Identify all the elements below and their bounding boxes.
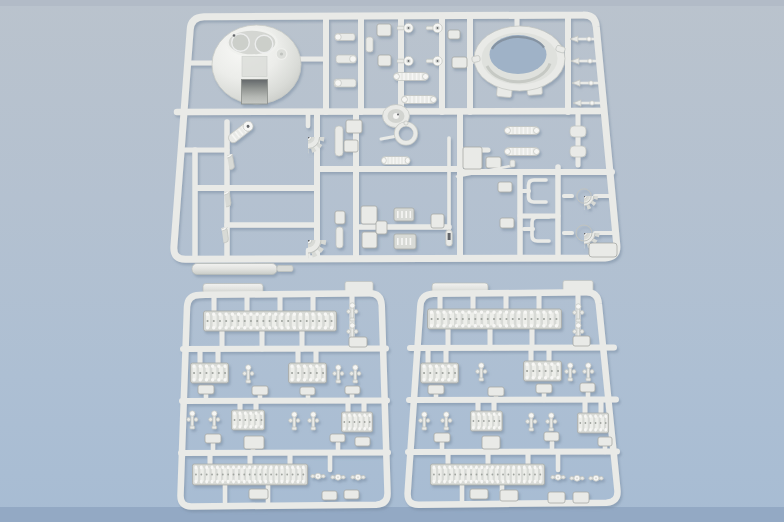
mount-pad: [573, 336, 590, 346]
mount-pad: [434, 433, 450, 442]
dome-plate: [242, 57, 267, 77]
mount-pad: [431, 214, 444, 228]
photo-canvas: [0, 0, 784, 522]
adjuster-block: [394, 234, 416, 249]
mount-pad: [252, 386, 268, 395]
muffler-rod: [505, 148, 540, 156]
mount-pad: [378, 55, 391, 66]
track-strip-long: [192, 464, 307, 485]
mount-pad: [244, 436, 264, 449]
mount-pad: [330, 434, 345, 442]
mount-pad: [488, 387, 504, 396]
cross-pin: [311, 473, 325, 479]
mount-pad: [376, 221, 387, 234]
mount-pad: [349, 337, 367, 347]
track-block: [191, 363, 229, 383]
track-strip-long: [430, 464, 544, 485]
clamp-part: [335, 34, 355, 41]
small-bar-part: [336, 227, 343, 248]
mount-pad: [452, 57, 467, 68]
muffler-rod: [505, 127, 540, 135]
track-strip-long: [204, 311, 337, 331]
mount-pad: [198, 385, 214, 394]
mount-pad: [500, 490, 518, 501]
ribbed-coupling-rod: [402, 96, 437, 104]
sprue-photo: [0, 0, 784, 522]
dome-notch: [242, 80, 268, 105]
mount-pad: [536, 384, 552, 393]
track-block: [289, 363, 327, 383]
mount-pad: [498, 182, 512, 192]
mount-pad: [500, 218, 514, 228]
backdrop-top-band: [0, 0, 784, 6]
track-block: [421, 363, 459, 383]
mount-pad: [346, 120, 362, 133]
corner-pad: [589, 243, 617, 257]
ribbed-coupling-rod: [394, 73, 429, 81]
track-block: [470, 411, 502, 431]
clamp-part: [334, 79, 356, 87]
capsule-part: [570, 146, 586, 157]
cross-pin: [351, 474, 365, 480]
mount-pad: [344, 490, 359, 499]
mount-pad: [361, 206, 377, 224]
runner: [182, 401, 387, 402]
mount-pad: [573, 492, 589, 503]
runner: [183, 349, 386, 350]
small-bar-part: [366, 37, 373, 52]
mount-pad: [322, 491, 337, 500]
mount-pad: [448, 30, 460, 39]
cross-pin: [589, 475, 603, 481]
mount-pad: [205, 434, 221, 443]
cross-pin: [551, 474, 565, 480]
mount-pad: [580, 383, 595, 392]
mount-pad: [548, 492, 565, 503]
capsule-part: [570, 126, 586, 137]
mount-pad: [598, 437, 612, 446]
track-strip-long: [428, 309, 562, 329]
mount-pad: [335, 211, 345, 224]
mount-pad: [544, 432, 559, 441]
mount-pad: [345, 386, 360, 394]
ring-tab: [471, 55, 480, 63]
mount-pad: [362, 232, 377, 248]
cross-pin: [570, 475, 584, 481]
mount-pad: [355, 437, 370, 446]
mount-pad: [463, 147, 482, 169]
mount-pad: [428, 385, 444, 394]
cross-pin: [331, 474, 345, 480]
mount-pad: [300, 387, 315, 395]
runner: [408, 452, 617, 453]
capsule-part: [335, 126, 343, 156]
mount-pad: [482, 436, 500, 449]
ribbed-coupling-rod: [381, 157, 410, 165]
backdrop-bottom-band: [0, 507, 784, 522]
track-block: [341, 412, 372, 432]
adjuster-block: [394, 208, 414, 221]
mount-pad: [486, 157, 501, 168]
mount-pad: [377, 24, 391, 36]
runner: [410, 348, 614, 349]
track-block: [577, 413, 608, 433]
clamp-part: [336, 55, 356, 63]
track-block: [231, 410, 264, 430]
hatch-right: [255, 35, 273, 53]
mount-pad: [470, 489, 488, 499]
mount-pad: [344, 140, 358, 152]
track-block: [524, 361, 562, 381]
mount-pad: [249, 489, 268, 499]
turret-dome: [212, 25, 301, 104]
